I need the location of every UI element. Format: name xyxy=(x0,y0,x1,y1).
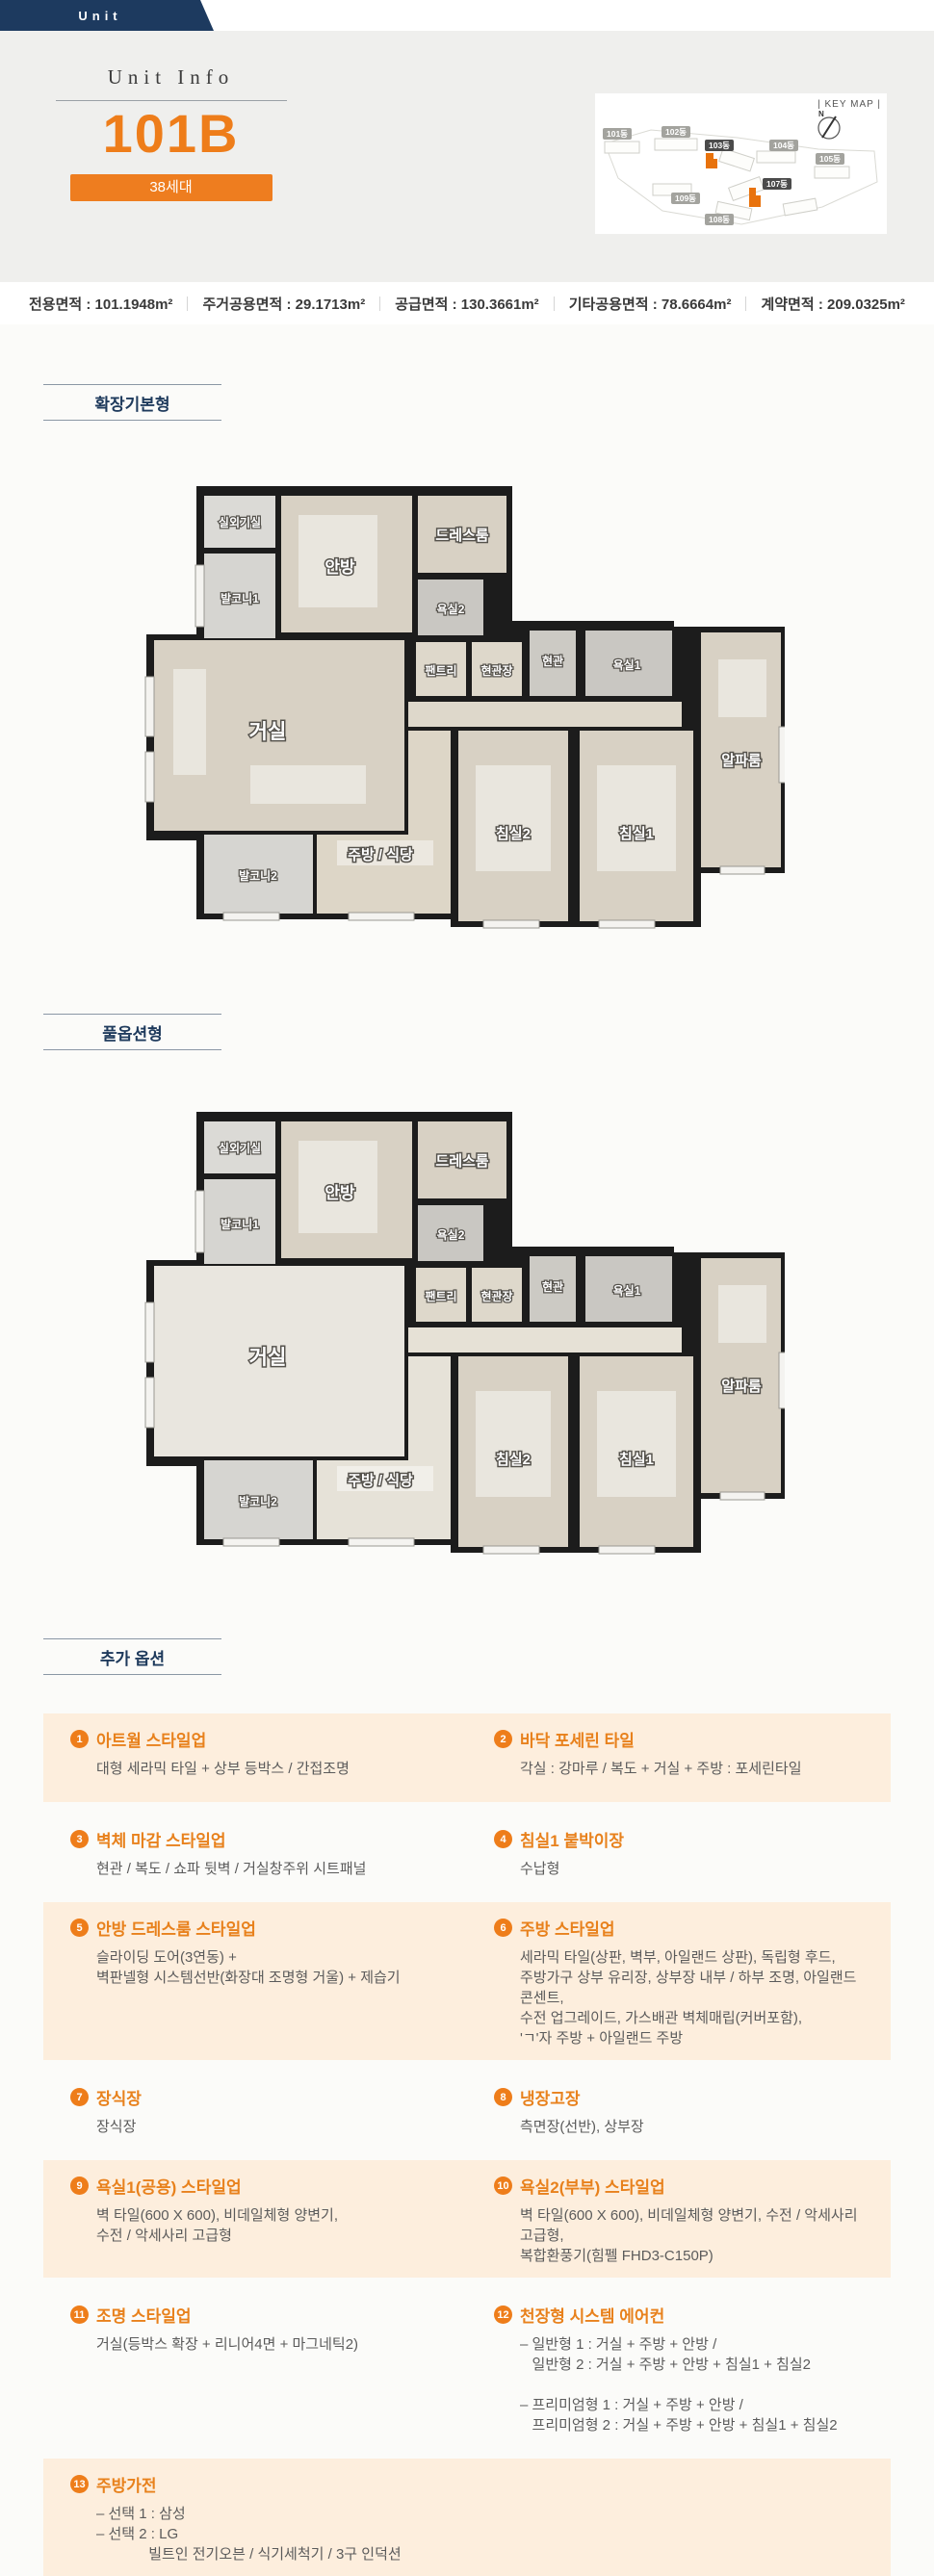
option-number-badge: 3 xyxy=(70,1830,89,1848)
hero-section: Unit Info 101B 38세대 | KEY MAP | xyxy=(0,31,934,282)
option-number-badge: 5 xyxy=(70,1919,89,1937)
badge-105: 105동 xyxy=(816,153,844,165)
option-body: 현관 / 복도 / 쇼파 뒷벽 / 거실창주위 시트패널 xyxy=(96,1859,448,1879)
option-row: 13주방가전 – 선택 1 : 삼성 – 선택 2 : LG 빌트인 전기오븐 … xyxy=(43,2459,891,2576)
option-bath1-styleup: 9욕실1(공용) 스타일업 벽 타일(600 X 600), 비데일체형 양변기… xyxy=(43,2160,467,2278)
key-map-title: | KEY MAP | xyxy=(817,99,881,110)
option-system-aircon: 12천장형 시스템 에어컨 – 일반형 1 : 거실 + 주방 + 안방 / 일… xyxy=(467,2289,891,2447)
option-bath2-styleup: 10욕실2(부부) 스타일업 벽 타일(600 X 600), 비데일체형 양변… xyxy=(467,2160,891,2278)
stat-divider xyxy=(379,296,380,311)
area-stats-bar: 전용면적 : 101.1948m² 주거공용면적 : 29.1713m² 공급면… xyxy=(0,282,934,324)
option-title: 벽체 마감 스타일업 xyxy=(96,1827,226,1851)
option-title: 아트월 스타일업 xyxy=(96,1727,206,1751)
svg-text:101동: 101동 xyxy=(607,129,628,139)
unit-info-block: Unit Info 101B 38세대 xyxy=(0,65,342,201)
tab-unit[interactable]: Unit xyxy=(0,0,214,31)
option-title: 주방가전 xyxy=(96,2472,157,2496)
option-number-badge: 8 xyxy=(494,2088,512,2106)
stat-supply-area: 공급면적 : 130.3661m² xyxy=(395,294,538,314)
option-number-badge: 13 xyxy=(70,2475,89,2493)
option-number-badge: 11 xyxy=(70,2306,89,2324)
option-number-badge: 12 xyxy=(494,2306,512,2324)
option-body: 장식장 xyxy=(96,2117,448,2137)
badge-108: 108동 xyxy=(705,214,734,225)
badge-104: 104동 xyxy=(769,140,798,151)
badge-102: 102동 xyxy=(662,126,690,138)
option-dressroom-styleup: 5안방 드레스룸 스타일업 슬라이딩 도어(3연동) + 벽판넬형 시스템선반(… xyxy=(43,1902,467,2060)
option-body: 세라믹 타일(상판, 벽부, 아일랜드 상판), 독립형 후드, 주방가구 상부… xyxy=(520,1947,871,2048)
option-number-badge: 4 xyxy=(494,1830,512,1848)
option-kitchen-styleup: 6주방 스타일업 세라믹 타일(상판, 벽부, 아일랜드 상판), 독립형 후드… xyxy=(467,1902,891,2060)
top-nav-strip: Unit xyxy=(0,0,934,31)
svg-text:103동: 103동 xyxy=(709,141,730,150)
option-body: 벽 타일(600 X 600), 비데일체형 양변기, 수전 / 악세사리 고급… xyxy=(96,2205,448,2246)
options-list: 1아트월 스타일업 대형 세라믹 타일 + 상부 등박스 / 간접조명 2바닥 … xyxy=(43,1713,891,2576)
svg-text:105동: 105동 xyxy=(819,154,841,164)
section-label-extended-basic: 확장기본형 xyxy=(43,384,221,421)
subtitle-rule xyxy=(56,100,287,101)
main-content: 확장기본형 풀옵션형 추가 옵션 1아트월 스타일업 대형 세라믹 타일 + 상… xyxy=(0,384,934,2576)
option-row: 11조명 스타일업 거실(등박스 확장 + 리니어4면 + 마그네틱2) 12천… xyxy=(43,2289,891,2447)
option-row: 3벽체 마감 스타일업 현관 / 복도 / 쇼파 뒷벽 / 거실창주위 시트패널… xyxy=(43,1814,891,1891)
stat-exclusive-area: 전용면적 : 101.1948m² xyxy=(29,294,172,314)
option-title: 욕실2(부부) 스타일업 xyxy=(520,2174,665,2198)
unit-marker-103 xyxy=(706,153,717,168)
option-number-badge: 9 xyxy=(70,2177,89,2195)
floorplan-extended-basic xyxy=(144,486,785,929)
section-label-additional-options: 추가 옵션 xyxy=(43,1638,221,1675)
badge-103: 103동 xyxy=(705,140,734,151)
option-title: 장식장 xyxy=(96,2085,142,2109)
option-fridge-cabinet: 8냉장고장 측면장(선반), 상부장 xyxy=(467,2072,891,2149)
option-body: 각실 : 강마루 / 복도 + 거실 + 주방 : 포세린타일 xyxy=(520,1759,871,1779)
option-title: 냉장고장 xyxy=(520,2085,581,2109)
option-porcelain-floor: 2바닥 포세린 타일 각실 : 강마루 / 복도 + 거실 + 주방 : 포세린… xyxy=(467,1713,891,1802)
svg-text:104동: 104동 xyxy=(773,141,794,150)
option-body: 거실(등박스 확장 + 리니어4면 + 마그네틱2) xyxy=(96,2334,448,2355)
option-number-badge: 6 xyxy=(494,1919,512,1937)
option-title: 욕실1(공용) 스타일업 xyxy=(96,2174,242,2198)
stat-contract-area: 계약면적 : 209.0325m² xyxy=(762,294,905,314)
option-title: 바닥 포세린 타일 xyxy=(520,1727,635,1751)
option-body: 측면장(선반), 상부장 xyxy=(520,2117,871,2137)
tab-unit-label: Unit xyxy=(78,9,121,23)
option-number-badge: 7 xyxy=(70,2088,89,2106)
household-count-badge: 38세대 xyxy=(70,174,272,201)
option-kitchen-appliances: 13주방가전 – 선택 1 : 삼성 – 선택 2 : LG 빌트인 전기오븐 … xyxy=(43,2459,891,2576)
option-row: 1아트월 스타일업 대형 세라믹 타일 + 상부 등박스 / 간접조명 2바닥 … xyxy=(43,1713,891,1802)
option-title: 침실1 붙박이장 xyxy=(520,1827,624,1851)
compass-icon: N xyxy=(818,110,840,139)
option-lighting-styleup: 11조명 스타일업 거실(등박스 확장 + 리니어4면 + 마그네틱2) xyxy=(43,2289,467,2447)
option-body: 슬라이딩 도어(3연동) + 벽판넬형 시스템선반(화장대 조명형 거울) + … xyxy=(96,1947,448,1988)
option-body: 벽 타일(600 X 600), 비데일체형 양변기, 수전 / 악세사리 고급… xyxy=(520,2205,871,2266)
key-map-canvas: | KEY MAP | 101동 xyxy=(595,93,887,234)
svg-text:N: N xyxy=(818,110,824,118)
unit-info-subtitle: Unit Info xyxy=(0,65,342,90)
option-wall-finish: 3벽체 마감 스타일업 현관 / 복도 / 쇼파 뒷벽 / 거실창주위 시트패널 xyxy=(43,1814,467,1891)
svg-text:108동: 108동 xyxy=(709,215,730,224)
option-body: – 선택 1 : 삼성 – 선택 2 : LG 빌트인 전기오븐 / 식기세척기… xyxy=(96,2504,871,2564)
stat-divider xyxy=(187,296,188,311)
option-row: 7장식장 장식장 8냉장고장 측면장(선반), 상부장 xyxy=(43,2072,891,2149)
option-display-cabinet: 7장식장 장식장 xyxy=(43,2072,467,2149)
badge-107: 107동 xyxy=(763,178,791,190)
stat-residential-common-area: 주거공용면적 : 29.1713m² xyxy=(203,294,366,314)
svg-text:109동: 109동 xyxy=(675,193,696,203)
option-body: 대형 세라믹 타일 + 상부 등박스 / 간접조명 xyxy=(96,1759,448,1779)
svg-text:102동: 102동 xyxy=(665,127,687,137)
option-bed1-closet: 4침실1 붙박이장 수납형 xyxy=(467,1814,891,1891)
badge-101: 101동 xyxy=(603,128,632,140)
floorplan-full-option xyxy=(144,1112,785,1555)
stat-other-common-area: 기타공용면적 : 78.6664m² xyxy=(569,294,732,314)
key-map: | KEY MAP | 101동 xyxy=(595,93,887,234)
unit-name: 101B xyxy=(0,107,342,161)
section-label-full-option: 풀옵션형 xyxy=(43,1014,221,1050)
option-body: 수납형 xyxy=(520,1859,871,1879)
stat-divider xyxy=(745,296,746,311)
option-artwall: 1아트월 스타일업 대형 세라믹 타일 + 상부 등박스 / 간접조명 xyxy=(43,1713,467,1802)
badge-109: 109동 xyxy=(671,193,700,204)
option-row: 9욕실1(공용) 스타일업 벽 타일(600 X 600), 비데일체형 양변기… xyxy=(43,2160,891,2278)
option-title: 안방 드레스룸 스타일업 xyxy=(96,1916,256,1940)
option-title: 조명 스타일업 xyxy=(96,2303,192,2327)
option-number-badge: 1 xyxy=(70,1730,89,1748)
option-body: – 일반형 1 : 거실 + 주방 + 안방 / 일반형 2 : 거실 + 주방… xyxy=(520,2334,871,2435)
svg-text:107동: 107동 xyxy=(766,179,788,189)
option-number-badge: 10 xyxy=(494,2177,512,2195)
option-row: 5안방 드레스룸 스타일업 슬라이딩 도어(3연동) + 벽판넬형 시스템선반(… xyxy=(43,1902,891,2060)
stat-divider xyxy=(554,296,555,311)
option-title: 천장형 시스템 에어컨 xyxy=(520,2303,664,2327)
option-title: 주방 스타일업 xyxy=(520,1916,615,1940)
option-number-badge: 2 xyxy=(494,1730,512,1748)
